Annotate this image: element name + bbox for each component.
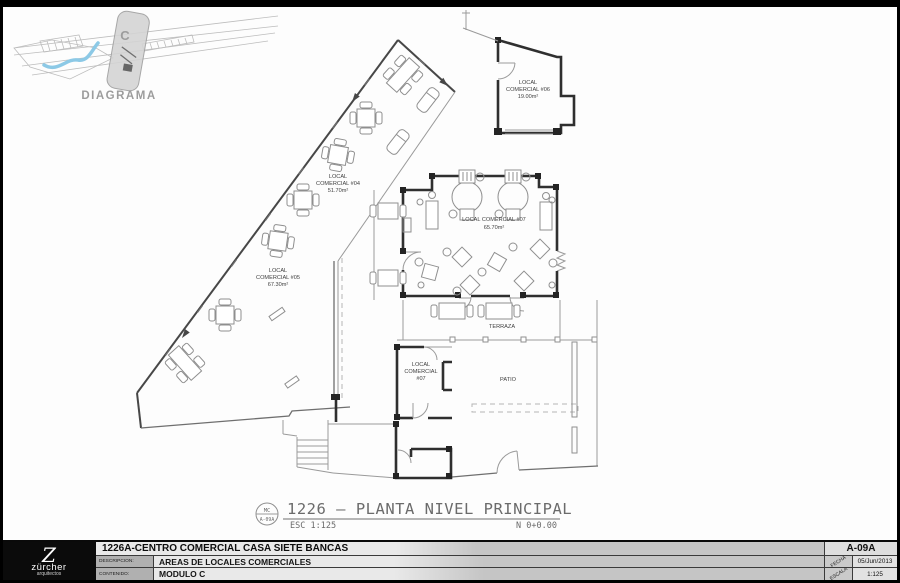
title-block-row-descripcion: DESCRIPCION: AREAS DE LOCALES COMERCIALE… [96, 556, 897, 568]
svg-text:#07: #07 [416, 376, 425, 382]
label-patio: PATIO [500, 377, 517, 383]
plan-scale-note: ESC 1:125 [290, 521, 336, 531]
label-local-06: LOCAL COMERCIAL #06 19.00m² [506, 80, 550, 100]
sheet-number: A-09A [825, 542, 897, 555]
svg-text:LOCAL COMERCIAL #07: LOCAL COMERCIAL #07 [462, 217, 526, 223]
site-diagram: C DIAGRAMA [14, 10, 278, 102]
svg-text:65.70m²: 65.70m² [484, 225, 505, 231]
project-title: 1226A-CENTRO COMERCIAL CASA SIETE BANCAS [96, 542, 825, 555]
svg-text:67.30m²: 67.30m² [268, 282, 289, 288]
descripcion-value: AREAS DE LOCALES COMERCIALES [154, 556, 825, 567]
module-c-letter: C [120, 28, 130, 43]
diagram-label: DIAGRAMA [81, 90, 156, 102]
fecha-label: FECHA [825, 556, 853, 567]
title-block-rows: 1226A-CENTRO COMERCIAL CASA SIETE BANCAS… [95, 542, 897, 580]
svg-text:COMERCIAL #06: COMERCIAL #06 [506, 87, 550, 93]
svg-text:COMERCIAL #05: COMERCIAL #05 [256, 275, 300, 281]
title-block: Z zürcher arquitectos 1226A-CENTRO COMER… [3, 540, 897, 580]
svg-text:COMERCIAL: COMERCIAL [404, 369, 437, 375]
svg-text:LOCAL: LOCAL [519, 80, 537, 86]
contenido-value: MODULO C [154, 568, 825, 580]
svg-text:LOCAL: LOCAL [412, 362, 430, 368]
drawing-title: MC A-09A 1226 – PLANTA NIVEL PRINCIPAL E… [256, 500, 572, 531]
svg-text:LOCAL: LOCAL [329, 174, 347, 180]
svg-text:19.00m²: 19.00m² [518, 94, 539, 100]
fecha-value: 05/Jun/2013 [853, 556, 897, 567]
label-local-04: LOCAL COMERCIAL #04 51.70m² [316, 174, 360, 194]
svg-text:LOCAL: LOCAL [269, 268, 287, 274]
firm-logo: Z zürcher arquitectos [3, 542, 95, 580]
plan-title: 1226 – PLANTA NIVEL PRINCIPAL [287, 500, 572, 518]
escala-value: 1:125 [853, 568, 897, 580]
label-terraza: TERRAZA [489, 324, 515, 330]
building-local-07: LOCAL COMERCIAL #07 65.70m² [370, 170, 565, 311]
contenido-label: CONTENIDO: [96, 568, 154, 580]
svg-text:51.70m²: 51.70m² [328, 188, 349, 194]
label-local-05: LOCAL COMERCIAL #05 67.30m² [256, 268, 300, 288]
plan-level-note: N 0+0.00 [516, 521, 557, 531]
terraza: TERRAZA [397, 303, 597, 342]
svg-text:COMERCIAL #04: COMERCIAL #04 [316, 181, 360, 187]
ref-bubble-bottom: A-09A [260, 517, 275, 523]
stairs-and-vestibule [283, 420, 452, 479]
room-local-06: LOCAL COMERCIAL #06 19.00m² [462, 10, 574, 135]
descripcion-label: DESCRIPCION: [96, 556, 154, 567]
label-local-07: LOCAL COMERCIAL #07 65.70m² [462, 217, 526, 231]
label-local-07b: LOCAL COMERCIAL #07 [404, 362, 437, 382]
drawing-sheet: C DIAGRAMA [3, 7, 897, 580]
title-block-row-contenido: CONTENIDO: MODULO C ESCALA 1:125 [96, 568, 897, 580]
logo-firm-subtitle: arquitectos [37, 572, 61, 577]
ref-bubble-top: MC [264, 508, 271, 514]
title-block-row-project: 1226A-CENTRO COMERCIAL CASA SIETE BANCAS… [96, 542, 897, 556]
escala-label: ESCALA [825, 568, 853, 580]
floor-plan: C DIAGRAMA [3, 7, 897, 580]
module-c-highlight [106, 10, 151, 92]
